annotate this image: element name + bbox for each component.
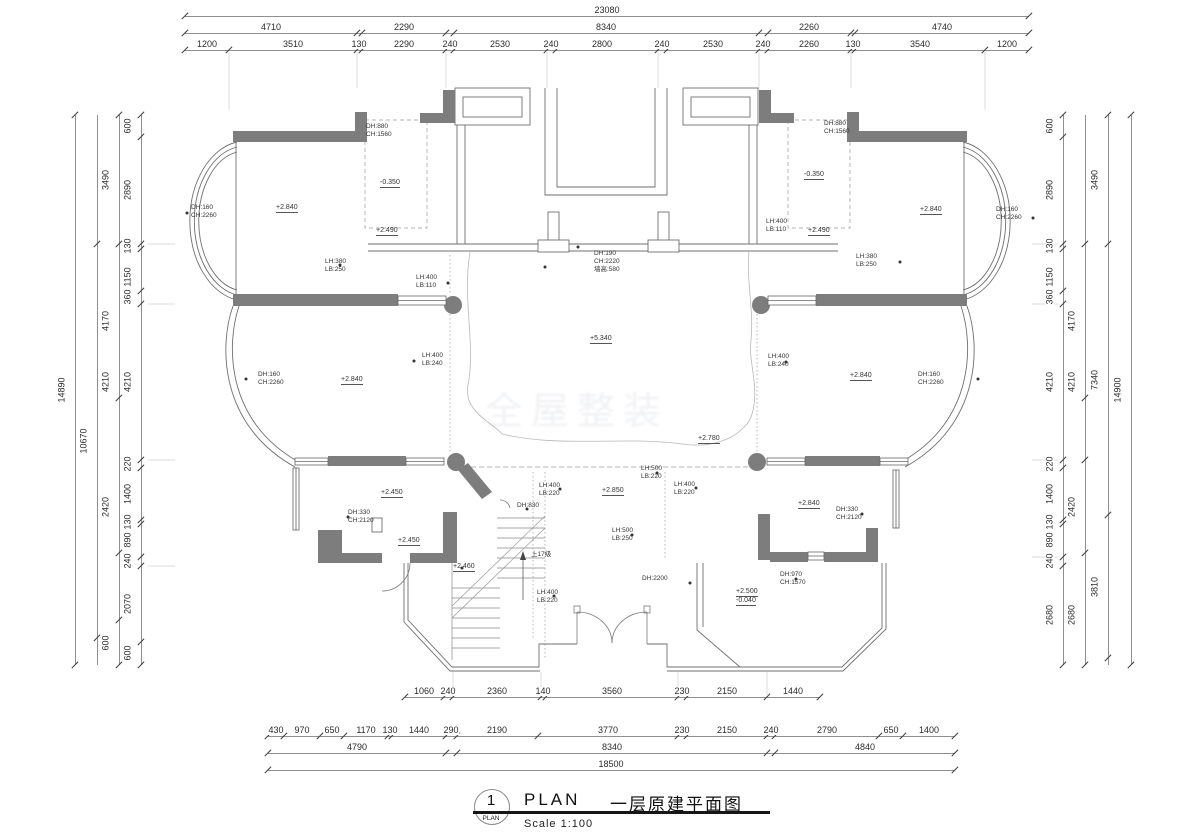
annotation-label: DH:880 — [824, 121, 846, 128]
dim-label: 2420 — [1068, 496, 1077, 518]
dim-label: 430 — [267, 726, 284, 735]
dim-label: 1440 — [782, 687, 804, 696]
leader-dot — [695, 487, 698, 490]
annotation-label: LB:250 — [856, 262, 877, 269]
dim-label: 7340 — [1091, 369, 1100, 391]
dim-label: 3560 — [601, 687, 623, 696]
dim-label: 1400 — [124, 483, 133, 505]
dim-label: 4210 — [102, 371, 111, 393]
annotation-label: LH:400 — [539, 483, 560, 490]
annotation-label: DH:160 — [258, 372, 280, 379]
annotation-label: CH:2260 — [191, 213, 217, 220]
annotation-label: DH:190 — [594, 251, 616, 258]
leader-dot — [339, 264, 342, 267]
dimension-line — [1063, 115, 1064, 665]
annotation-label: +5.340 — [590, 335, 612, 344]
annotation-label: DH:880 — [366, 124, 388, 131]
dimension-line — [1085, 115, 1086, 665]
annotation-label: -0.350 — [804, 171, 824, 180]
dim-label: 3770 — [597, 726, 619, 735]
annotation-label: LB:220 — [537, 598, 558, 605]
annotation-label: CH:2260 — [258, 380, 284, 387]
dimension-line — [1131, 115, 1132, 665]
watermark: 全屋整装 — [462, 380, 692, 435]
leader-dot — [245, 378, 248, 381]
dim-label: 130 — [1046, 513, 1055, 530]
drawing-scale: Scale 1:100 — [524, 818, 593, 830]
dim-label: 240 — [762, 726, 779, 735]
annotation-label: LB:110 — [766, 227, 786, 234]
dim-label: 14900 — [1114, 376, 1123, 403]
leader-dot — [526, 508, 529, 511]
annotation-label: +2.840 — [798, 500, 820, 509]
dim-label: 130 — [1046, 237, 1055, 254]
dim-label: 1400 — [1046, 483, 1055, 505]
annotation-label: -0.350 — [380, 179, 400, 188]
floorplan-page: 全屋整装 23080471022908340226047401200351013… — [0, 0, 1200, 839]
dimension-line — [97, 115, 98, 665]
dim-label: 3490 — [1091, 169, 1100, 191]
detail-circle-caption: PLAN — [474, 815, 508, 822]
annotation-label: +2.500 — [736, 588, 758, 597]
annotation-label: +2.840 — [276, 204, 298, 213]
dimension-line — [185, 16, 1029, 17]
annotation-label: LH:400 — [674, 482, 695, 489]
annotation-label: LH:380 — [325, 259, 346, 266]
stair-direction-arrow — [520, 551, 526, 560]
dim-label: 2800 — [591, 40, 613, 49]
dim-label: 220 — [1046, 455, 1055, 472]
dim-label: 18500 — [597, 760, 624, 769]
dim-label: 1150 — [1046, 266, 1055, 287]
annotation-label: DH:160 — [918, 372, 940, 379]
dim-label: 240 — [653, 40, 670, 49]
annotation-label: LB:220 — [641, 474, 662, 481]
leader-dot — [977, 378, 980, 381]
dim-label: 2360 — [486, 687, 508, 696]
annotation-label: +2.840 — [850, 372, 872, 381]
annotation-label: DH:330 — [348, 510, 370, 517]
leader-dot — [559, 488, 562, 491]
dim-label: 2680 — [1046, 604, 1055, 626]
annotation-label: CH:2260 — [918, 380, 944, 387]
dim-label: 970 — [293, 726, 310, 735]
dimension-line — [141, 115, 142, 665]
annotation-label: DH:330 — [836, 507, 858, 514]
dim-label: 230 — [673, 726, 690, 735]
dim-label: 4840 — [854, 743, 876, 752]
annotation-label: +2.450 — [398, 537, 420, 546]
dim-label: 1440 — [408, 726, 430, 735]
annotation-label: CH:1560 — [824, 129, 850, 136]
leader-dot — [1032, 217, 1035, 220]
annotation-label: +2.450 — [381, 489, 403, 498]
annotation-label: CH:2220 — [594, 259, 620, 266]
dim-label: 2150 — [716, 687, 738, 696]
annotation-label: CH:2120 — [348, 518, 374, 525]
dim-label: 650 — [323, 726, 340, 735]
dim-label: 600 — [1046, 117, 1055, 134]
dim-label: 2290 — [393, 23, 415, 32]
dim-label: 1150 — [124, 266, 133, 287]
dim-label: 2890 — [124, 179, 133, 201]
dim-label: 3510 — [282, 40, 304, 49]
dim-label: 600 — [124, 644, 133, 661]
leader-dot — [544, 266, 547, 269]
leader-dot — [785, 361, 788, 364]
annotation-label: DH:970 — [780, 572, 802, 579]
dim-label: 2680 — [1068, 604, 1077, 626]
dim-label: 3490 — [102, 169, 111, 191]
leader-dot — [795, 578, 798, 581]
dim-label: 130 — [381, 726, 398, 735]
annotation-label: LH:400 — [766, 219, 787, 226]
dimension-line — [185, 33, 1029, 34]
dim-label: 130 — [124, 513, 133, 530]
leader-dot — [631, 534, 634, 537]
dim-label: 14890 — [58, 376, 67, 403]
annotation-label: +2.780 — [698, 435, 720, 444]
annotation-label: +2.490 — [808, 227, 830, 236]
dim-label: 2070 — [124, 593, 133, 615]
leader-dot — [461, 567, 464, 570]
dim-label: 650 — [882, 726, 899, 735]
dimension-line — [405, 697, 820, 698]
dim-label: 2530 — [489, 40, 511, 49]
dim-label: 240 — [754, 40, 771, 49]
doors — [382, 500, 650, 644]
dim-label: 1200 — [996, 40, 1018, 49]
annotation-label: LB:240 — [422, 361, 443, 368]
dim-label: 4210 — [1046, 371, 1055, 393]
dim-label: 2190 — [486, 726, 508, 735]
dim-label: 4710 — [260, 23, 282, 32]
dim-label: 230 — [673, 687, 690, 696]
leader-dot — [347, 516, 350, 519]
annotation-label: LH:380 — [856, 254, 877, 261]
dim-label: 600 — [102, 634, 111, 651]
dim-label: 890 — [124, 531, 133, 548]
dim-label: 600 — [124, 117, 133, 134]
annotation-label: LB:220 — [674, 490, 695, 497]
dim-label: 140 — [534, 687, 551, 696]
leader-dot — [413, 360, 416, 363]
annotation-label: -0.040 — [736, 597, 756, 606]
dim-label: 2890 — [1046, 179, 1055, 201]
annotation-label: LH:400 — [422, 353, 443, 360]
dim-label: 8340 — [595, 23, 617, 32]
dim-label: 4210 — [124, 371, 133, 393]
dim-label: 130 — [844, 40, 861, 49]
dimension-line — [119, 115, 120, 665]
dim-label: 220 — [124, 455, 133, 472]
dim-label: 2260 — [798, 40, 820, 49]
dim-label: 240 — [124, 552, 133, 569]
dim-label: 130 — [124, 237, 133, 254]
dimension-line — [268, 736, 955, 737]
leader-dot — [577, 246, 580, 249]
dim-label: 1060 — [413, 687, 435, 696]
annotation-label: 上17级 — [531, 552, 551, 559]
leader-dot — [899, 261, 902, 264]
annotation-label: DH:160 — [191, 205, 213, 212]
annotation-label: LB:220 — [539, 491, 560, 498]
dim-label: 2290 — [393, 40, 415, 49]
annotation-label: +2.460 — [453, 563, 475, 572]
dim-label: 290 — [442, 726, 459, 735]
dim-label: 3540 — [909, 40, 931, 49]
annotation-label: LB:250 — [325, 267, 346, 274]
dim-label: 240 — [441, 40, 458, 49]
annotation-label: +2.850 — [602, 487, 624, 496]
dim-label: 1170 — [355, 726, 376, 735]
dim-label: 4170 — [102, 310, 111, 332]
annotation-label: +2.840 — [920, 206, 942, 215]
leader-dot — [186, 212, 189, 215]
dim-label: 23080 — [593, 6, 620, 15]
dim-label: 2150 — [716, 726, 738, 735]
dim-label: 240 — [439, 687, 456, 696]
annotation-label: LH:500 — [641, 466, 662, 473]
dimension-line — [268, 753, 955, 754]
annotation-label: LB:250 — [612, 536, 633, 543]
dim-label: 240 — [1046, 552, 1055, 569]
leader-dot — [447, 282, 450, 285]
dim-label: 2790 — [816, 726, 838, 735]
leader-dot — [553, 595, 556, 598]
dimension-line — [75, 115, 76, 665]
dim-label: 4790 — [346, 743, 368, 752]
annotation-label: +2.840 — [341, 376, 363, 385]
annotation-label: CH:1560 — [366, 132, 392, 139]
dimension-line — [185, 50, 1029, 51]
annotation-label: DH:2200 — [642, 576, 668, 583]
annotation-label: 墙高:580 — [594, 267, 620, 274]
annotation-label: +2.490 — [376, 227, 398, 236]
dim-label: 3810 — [1091, 576, 1100, 598]
dim-label: 8340 — [601, 743, 623, 752]
dim-label: 2420 — [102, 496, 111, 518]
dim-label: 4740 — [931, 23, 953, 32]
dim-label: 360 — [1046, 288, 1055, 305]
structural-walls — [233, 90, 967, 563]
annotation-label: CH:1570 — [780, 580, 806, 587]
dim-label: 2260 — [798, 23, 820, 32]
drawing-name: 一层原建平面图 — [610, 790, 743, 815]
leader-dot — [656, 472, 659, 475]
dim-label: 10670 — [80, 427, 89, 454]
dim-label: 890 — [1046, 531, 1055, 548]
dimension-line — [1108, 115, 1109, 665]
annotation-label: DH:160 — [996, 207, 1018, 214]
dim-label: 240 — [542, 40, 559, 49]
annotation-label: LH:400 — [416, 275, 437, 282]
dim-label: 4170 — [1068, 310, 1077, 332]
dim-label: 130 — [350, 40, 367, 49]
dim-label: 1400 — [918, 726, 940, 735]
detail-number: 1 — [474, 792, 508, 809]
leader-dot — [861, 513, 864, 516]
plan-title: PLAN — [524, 790, 580, 810]
leader-dot — [689, 582, 692, 585]
annotation-label: CH:2260 — [996, 215, 1022, 222]
dim-label: 360 — [124, 288, 133, 305]
dim-label: 4210 — [1068, 371, 1077, 393]
staircase — [452, 512, 545, 660]
dimension-line — [268, 770, 955, 771]
dim-label: 1200 — [196, 40, 218, 49]
annotation-label: LB:110 — [416, 283, 436, 290]
annotation-label: CH:2120 — [836, 515, 862, 522]
dim-label: 2530 — [702, 40, 724, 49]
